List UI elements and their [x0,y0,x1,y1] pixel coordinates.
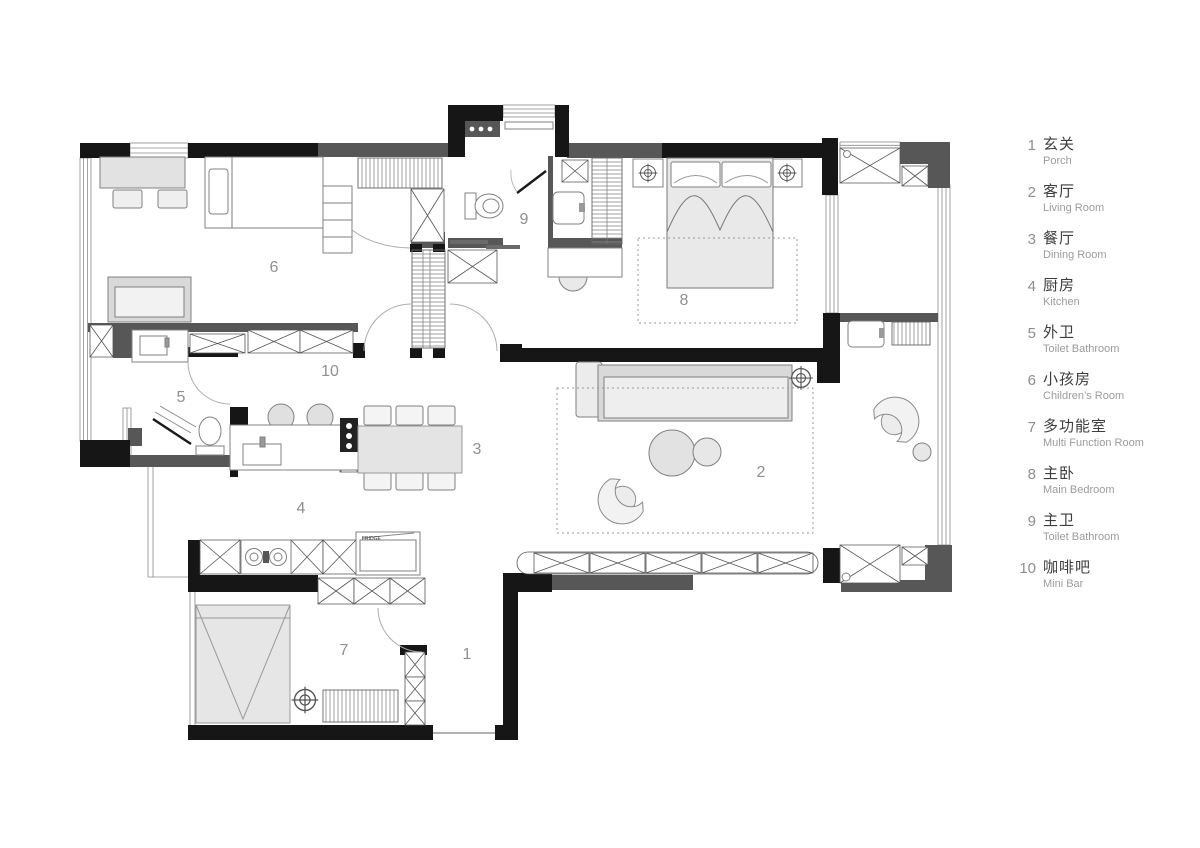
room7-left-lines [190,592,195,725]
legend-zh: 多功能室 [1043,418,1144,436]
legend-item-multi: 7 多功能室 Multi Function Room [1016,418,1186,450]
legend-item-living: 2 客厅 Living Room [1016,183,1186,215]
legend-item-porch: 1 玄关 Porch [1016,136,1186,168]
legend-zh: 咖啡吧 [1043,559,1091,577]
louver-closet-room6 [358,158,442,188]
washing-machine [292,687,319,714]
armchair-right [868,387,929,448]
room-label-living: 2 [757,464,766,481]
window-balcony-right [938,185,950,545]
bath9-mirror [505,122,553,129]
window-bedroom-right [826,195,838,313]
room-label-toilet9: 9 [520,211,529,228]
kitchen-island [230,425,358,470]
vanity-sink [553,192,585,224]
cabinet-minibar-3 [300,330,353,353]
stove [241,540,291,574]
bath9-toilet [465,193,503,219]
room-label-children: 6 [270,259,279,276]
legend-en: Children’s Room [1043,390,1124,403]
cabinet-vanity [562,160,588,182]
legend-item-children: 6 小孩房 Children’s Room [1016,371,1186,403]
island-connector [340,418,358,452]
legend-number: 2 [1016,183,1036,202]
cabinet-corner-small [902,166,928,186]
legend: 1 玄关 Porch 2 客厅 Living Room 3 餐厅 Dining … [1016,136,1186,606]
legend-zh: 玄关 [1043,136,1075,154]
bed-main [667,158,773,288]
cabinet-minibar-1 [190,334,245,353]
legend-number: 7 [1016,418,1036,437]
legend-en: Mini Bar [1043,578,1091,591]
floor-lamp [789,366,813,390]
cabinet-kitchen-1 [200,540,240,574]
legend-number: 5 [1016,324,1036,343]
door-hall-right [450,304,497,351]
legend-item-toilet9: 9 主卫 Toilet Bathroom [1016,512,1186,544]
minibar-sink [132,330,188,362]
window-top-left [130,143,188,158]
legend-item-minibar: 10 咖啡吧 Mini Bar [1016,559,1186,591]
cabinet-hall-closet [411,189,444,242]
room6-bed [205,157,323,228]
cabinet-entry-small [902,547,928,565]
sofa [576,362,792,421]
legend-zh: 厨房 [1043,277,1080,295]
room6-steps [323,186,352,253]
cabinet-minibar-2 [248,330,300,353]
bath9-basin-dots [470,127,493,132]
window-bath-top [503,105,555,117]
tv-cabinet [517,552,818,574]
dot-entry [842,573,850,581]
toilet5-fixture [196,417,224,455]
legend-en: Dining Room [1043,249,1107,262]
room-label-toilet5: 5 [177,389,186,406]
armchair-left [588,473,649,534]
room6-bench [108,277,191,322]
side-table [913,443,931,461]
legend-en: Toilet Bathroom [1043,343,1119,356]
legend-en: Living Room [1043,202,1104,215]
louver-balcony-vent [892,322,930,345]
legend-number: 3 [1016,230,1036,249]
cabinet-porch-col-1 [405,652,425,677]
cabinet-kitchen-low-2 [354,578,390,604]
coffee-table-small [693,438,721,466]
cabinet-kitchen-2 [291,540,323,574]
louver-room7-vent [323,690,398,722]
cabinet-kitchen-low-1 [318,578,354,604]
legend-zh: 主卫 [1043,512,1119,530]
shaft-lines [148,467,188,577]
legend-en: Multi Function Room [1043,437,1144,450]
legend-number: 10 [1016,559,1036,578]
room-label-porch: 1 [463,646,472,663]
legend-number: 1 [1016,136,1036,155]
legend-zh: 小孩房 [1043,371,1124,389]
legend-en: Porch [1043,155,1075,168]
cabinet-kitchen-3 [323,540,356,574]
room7-tatami [196,605,290,723]
legend-zh: 客厅 [1043,183,1104,201]
legend-zh: 餐厅 [1043,230,1107,248]
cabinet-kitchen-low-3 [390,578,425,604]
floorplan-page: 1 2 3 4 5 6 7 8 9 10 FRIDGE 1 玄关 Porch 2… [0,0,1200,848]
room6-desk [100,157,187,208]
dot-balcony [844,151,851,158]
legend-number: 9 [1016,512,1036,531]
legend-number: 4 [1016,277,1036,296]
window-left [80,158,91,441]
legend-en: Main Bedroom [1043,484,1115,497]
legend-item-toilet5: 5 外卫 Toilet Bathroom [1016,324,1186,356]
dining-table [358,426,462,473]
legend-en: Toilet Bathroom [1043,531,1119,544]
cabinet-porch-col-2 [405,677,425,701]
room-label-mainbed: 8 [680,292,689,309]
room-label-multi: 7 [340,642,349,659]
coffee-table-large [649,430,695,476]
legend-item-mainbed: 8 主卧 Main Bedroom [1016,465,1186,497]
legend-item-kitchen: 4 厨房 Kitchen [1016,277,1186,309]
room-label-kitchen: 4 [297,500,306,517]
legend-en: Kitchen [1043,296,1080,309]
balcony-sink [848,321,884,347]
legend-number: 8 [1016,465,1036,484]
bedroom-desk [548,248,622,291]
room-label-dining: 3 [473,441,482,458]
door-toilet5 [188,362,230,404]
door-hall-left [364,304,411,351]
bath9-door [511,170,546,193]
legend-zh: 主卧 [1043,465,1115,483]
louver-screen-hall [412,250,445,348]
room-label-minibar: 10 [321,363,339,380]
legend-number: 6 [1016,371,1036,390]
fridge-label: FRIDGE [362,536,382,542]
legend-zh: 外卫 [1043,324,1119,342]
cabinet-porch-col-3 [405,701,425,725]
toilet5-rail [153,406,196,444]
legend-item-dining: 3 餐厅 Dining Room [1016,230,1186,262]
louver-wardrobe-bedroom [592,158,622,244]
cabinet-left-wall [90,325,113,357]
room6-door-curve [352,230,410,248]
cabinet-bath-under [448,250,497,283]
